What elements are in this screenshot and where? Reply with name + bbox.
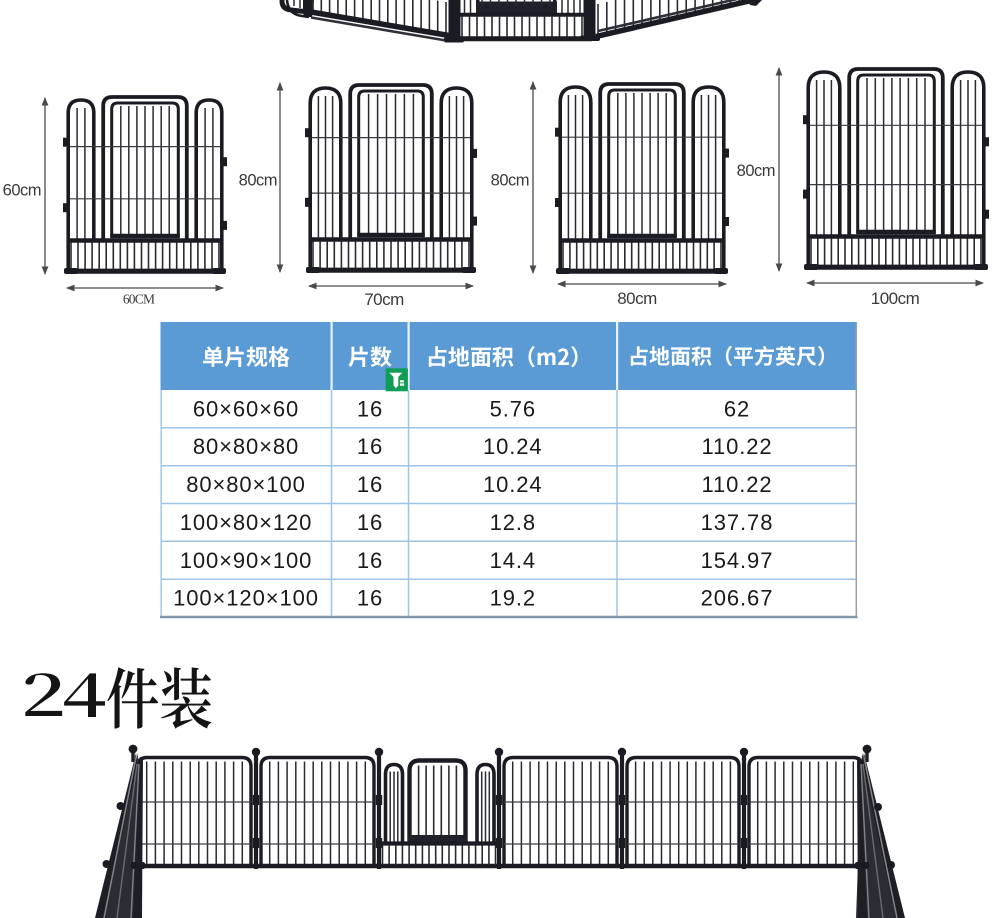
- svg-text:19.2: 19.2: [490, 586, 536, 611]
- svg-text:16: 16: [357, 510, 383, 535]
- svg-text:110.22: 110.22: [701, 434, 772, 459]
- svg-text:5.76: 5.76: [490, 396, 536, 421]
- svg-text:60×60×60: 60×60×60: [193, 396, 299, 421]
- svg-text:80×80×80: 80×80×80: [193, 434, 299, 459]
- svg-text:154.97: 154.97: [701, 548, 774, 573]
- svg-text:80cm: 80cm: [239, 172, 277, 190]
- svg-text:137.78: 137.78: [701, 510, 774, 535]
- svg-text:70cm: 70cm: [364, 290, 404, 309]
- svg-text:110.22: 110.22: [701, 472, 772, 497]
- svg-text:100×80×120: 100×80×120: [180, 510, 313, 535]
- svg-text:80cm: 80cm: [491, 172, 529, 190]
- svg-text:16: 16: [357, 472, 383, 497]
- svg-text:100×90×100: 100×90×100: [180, 548, 313, 573]
- svg-text:16: 16: [357, 586, 383, 611]
- svg-text:62: 62: [724, 396, 750, 421]
- svg-text:16: 16: [357, 548, 383, 573]
- svg-text:100cm: 100cm: [871, 289, 920, 308]
- svg-text:16: 16: [357, 434, 383, 459]
- svg-text:60cm: 60cm: [3, 182, 41, 200]
- svg-text:12.8: 12.8: [490, 510, 536, 535]
- svg-text:80cm: 80cm: [737, 162, 775, 180]
- svg-text:100×120×100: 100×120×100: [173, 586, 319, 611]
- svg-text:10.24: 10.24: [483, 434, 543, 459]
- svg-text:10.24: 10.24: [483, 472, 543, 497]
- svg-text:80cm: 80cm: [617, 289, 657, 308]
- svg-text:16: 16: [357, 396, 383, 421]
- svg-text:60CM: 60CM: [123, 292, 155, 307]
- svg-text:206.67: 206.67: [701, 586, 774, 611]
- svg-text:14.4: 14.4: [490, 548, 536, 573]
- svg-text:80×80×100: 80×80×100: [186, 472, 305, 497]
